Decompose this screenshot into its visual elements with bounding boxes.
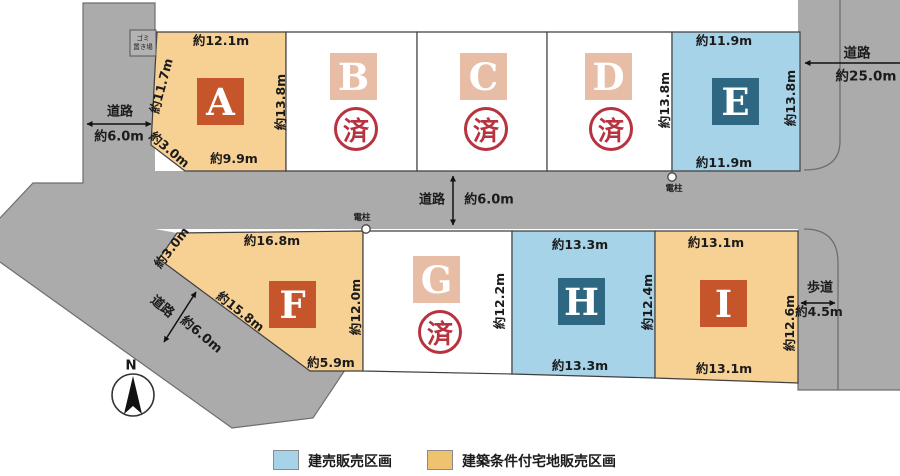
garbage-station-label-line2: 置き場	[133, 44, 153, 51]
lot-h-letter: H	[564, 280, 599, 324]
lot-e-top-dim: 約11.9m	[696, 35, 752, 48]
left-road-name: 道路	[107, 106, 133, 119]
lot-e-right-dim: 約13.8m	[785, 70, 798, 126]
legend-built-for-sale-swatch	[273, 450, 299, 470]
lot-h-bottom-dim: 約13.3m	[552, 360, 608, 373]
lot-h-tile: H	[558, 278, 605, 325]
legend-conditional-land-swatch	[427, 450, 453, 470]
lot-a-tile: A	[197, 78, 244, 125]
lot-h-top-dim: 約13.3m	[552, 239, 608, 252]
sold-stamp-text: 済	[473, 111, 499, 148]
middle-road-width: 約6.0m	[464, 194, 514, 207]
lot-f-right-dim: 約12.0m	[350, 279, 363, 335]
sidewalk-width: 約4.5m	[795, 306, 843, 319]
lot-e-letter: E	[721, 80, 749, 124]
lot-map: A B C D E F G H I 済 済 済 済 約12.1m 約11.7m …	[0, 0, 900, 476]
lot-b-letter: B	[338, 55, 369, 99]
lot-g-right-dim: 約12.2m	[494, 273, 507, 329]
right-road-width: 約25.0m	[836, 70, 897, 84]
right-road-name: 道路	[844, 47, 871, 61]
lot-e-bottom-dim: 約11.9m	[696, 157, 752, 170]
utility-pole-label: 電柱	[353, 214, 370, 223]
lot-d-sold-stamp: 済	[589, 107, 633, 151]
lot-d-tile: D	[585, 53, 632, 100]
middle-road-name: 道路	[419, 194, 445, 207]
lot-b-sold-stamp: 済	[334, 107, 378, 151]
lot-f-bottom-dim: 約5.9m	[307, 357, 355, 370]
sold-stamp-text: 済	[343, 111, 369, 148]
lot-i-letter: I	[715, 282, 732, 326]
sold-stamp-text: 済	[598, 111, 624, 148]
lot-e-tile: E	[712, 78, 759, 125]
utility-pole-label: 電柱	[665, 185, 682, 194]
lot-d-letter: D	[592, 55, 624, 99]
lot-a-right-dim: 約13.8m	[275, 74, 288, 130]
garbage-station-label-line1: ゴミ	[137, 35, 150, 42]
utility-pole-icon	[668, 173, 676, 181]
lot-a-bottom-dim: 約9.9m	[210, 153, 258, 166]
left-road-width: 約6.0m	[94, 131, 144, 144]
lot-c-sold-stamp: 済	[464, 107, 508, 151]
sidewalk-name: 歩道	[807, 282, 833, 295]
lot-g-letter: G	[421, 258, 453, 302]
sold-stamp-text: 済	[427, 314, 453, 351]
compass-north-label: N	[125, 359, 136, 373]
lot-c-letter: C	[469, 55, 498, 99]
road-left-vertical	[83, 3, 155, 171]
utility-pole-icon	[362, 225, 370, 233]
legend-conditional-land-label: 建築条件付宅地販売区画	[462, 451, 616, 471]
lot-d-right-dim: 約13.8m	[659, 72, 672, 128]
lot-i-top-dim: 約13.1m	[688, 237, 744, 250]
lot-c-tile: C	[460, 53, 507, 100]
lot-f-top-dim: 約16.8m	[244, 235, 300, 248]
plan-drawing	[0, 0, 900, 476]
lot-g-tile: G	[413, 256, 460, 303]
lot-a-letter: A	[206, 80, 235, 124]
lot-i-bottom-dim: 約13.1m	[696, 363, 752, 376]
lot-f-tile: F	[269, 281, 316, 328]
lot-i-tile: I	[700, 280, 747, 327]
lot-f-letter: F	[279, 283, 305, 327]
lot-g-sold-stamp: 済	[418, 310, 462, 354]
legend-built-for-sale-label: 建売販売区画	[308, 451, 392, 471]
lot-a-top-dim: 約12.1m	[193, 35, 249, 48]
lot-h-right-dim: 約12.4m	[642, 274, 655, 330]
lot-b-tile: B	[330, 53, 377, 100]
